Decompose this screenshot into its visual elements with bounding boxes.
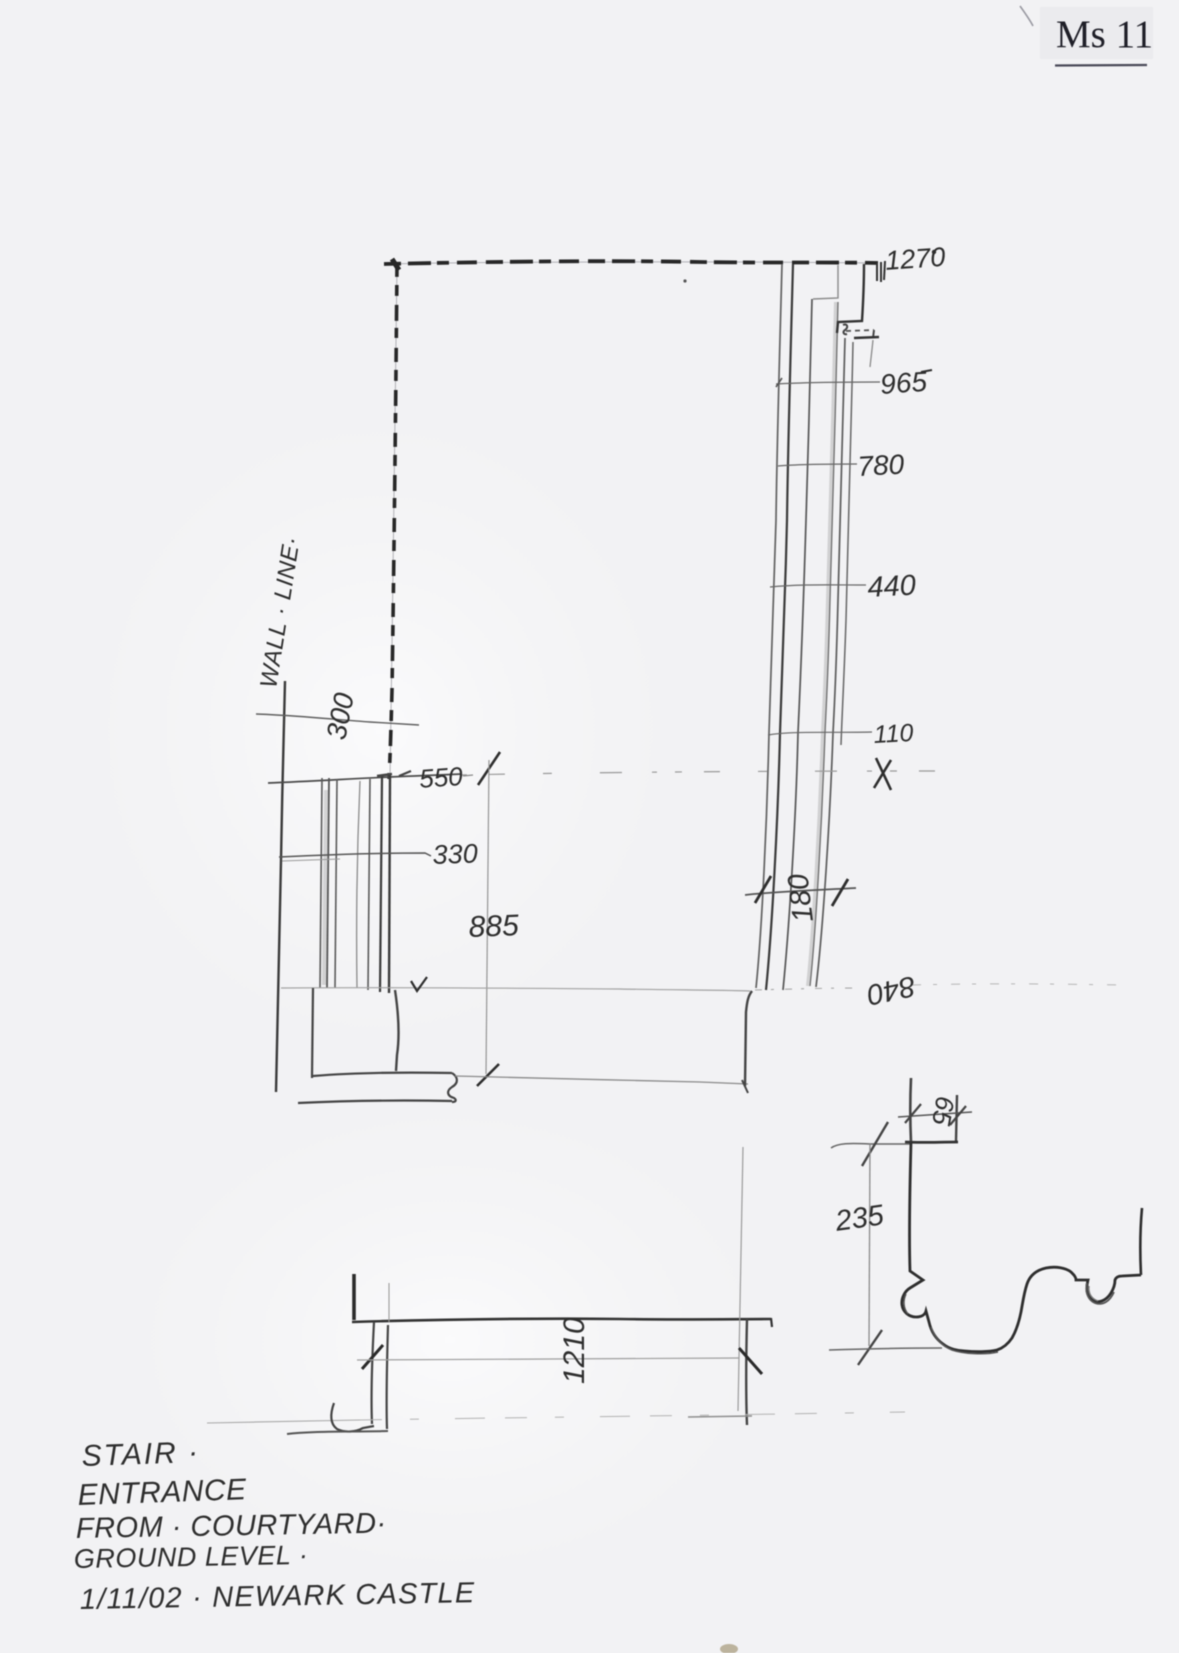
svg-text:65: 65 xyxy=(926,1094,961,1128)
svg-text:440: 440 xyxy=(867,570,917,604)
svg-text:885: 885 xyxy=(468,909,519,944)
svg-text:550: 550 xyxy=(418,761,464,794)
svg-text:ENTRANCE: ENTRANCE xyxy=(77,1473,248,1512)
svg-text:780: 780 xyxy=(857,449,906,482)
svg-text:GROUND LEVEL ·: GROUND LEVEL · xyxy=(74,1540,309,1574)
svg-text:STAIR ·: STAIR · xyxy=(81,1436,201,1473)
svg-text:965: 965 xyxy=(879,366,928,400)
svg-text:1270: 1270 xyxy=(884,242,946,276)
svg-text:180: 180 xyxy=(782,872,820,924)
svg-text:110: 110 xyxy=(873,719,914,749)
svg-text:Ms 11: Ms 11 xyxy=(1056,13,1153,56)
svg-text:330: 330 xyxy=(432,838,478,870)
svg-text:1210: 1210 xyxy=(558,1317,591,1384)
svg-text:FROM · COURTYARD·: FROM · COURTYARD· xyxy=(76,1508,387,1545)
